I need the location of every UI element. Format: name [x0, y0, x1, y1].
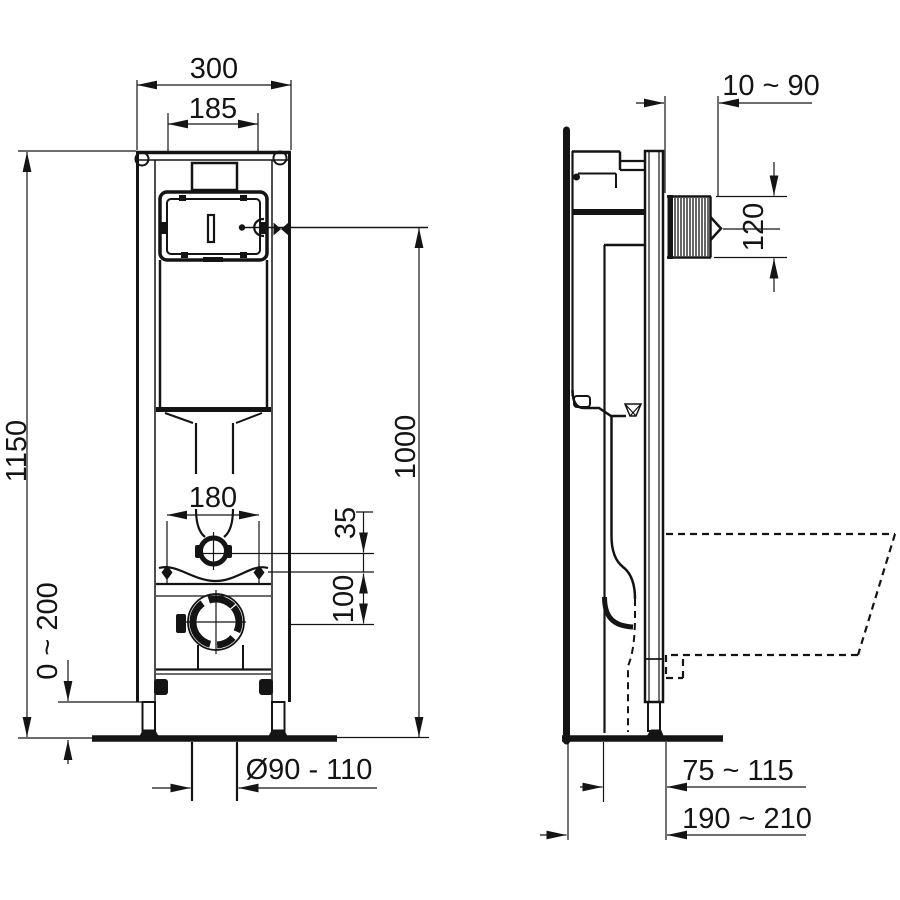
dim-cistern-width: 185 — [168, 93, 258, 151]
drain-bend — [605, 597, 634, 627]
leg-clip-right — [259, 679, 273, 695]
front-view: 300 185 1150 0 ~ 200 180 — [1, 53, 429, 801]
flush-button-slot — [208, 215, 214, 242]
shaft-pointer — [711, 217, 722, 240]
floor-drain-pipe — [192, 742, 237, 801]
frame-rail-side — [645, 151, 664, 737]
dim-actuator-opening: 120 — [714, 162, 787, 292]
leg-clip-left — [154, 679, 168, 695]
dim-leg-adjustment-label: 0 ~ 200 — [32, 582, 64, 680]
dim-offsets: 35 100 — [199, 507, 374, 625]
cistern — [156, 163, 289, 423]
wc-frame-drawing: 300 185 1150 0 ~ 200 180 — [0, 0, 900, 900]
supply-connection-point — [239, 224, 245, 230]
dim-outlet-depth: 75 ~ 115 — [580, 755, 806, 787]
dim-flush-offset-label: 35 — [330, 507, 362, 539]
actuator-shaft — [667, 195, 721, 259]
dim-fixing-spacing-label: 180 — [189, 482, 237, 514]
dim-overall-height-label: 1150 — [1, 420, 33, 482]
dim-actuator-height-label: 1000 — [390, 415, 422, 480]
dim-drain-depth: 190 ~ 210 — [540, 803, 812, 835]
valve-symbol — [274, 223, 282, 236]
dim-outlet-diameter: Ø90 - 110 — [152, 754, 377, 788]
dim-cistern-width-label: 185 — [189, 93, 237, 125]
dim-overall-width-label: 300 — [190, 53, 238, 85]
adjustable-legs — [139, 679, 288, 737]
wc-pan-outline — [666, 534, 895, 678]
dim-outlet-offset-label: 100 — [328, 575, 360, 623]
cistern-side — [572, 151, 646, 733]
drain-elbow — [176, 590, 248, 670]
dim-wall-adjustment-label: 10 ~ 90 — [722, 70, 820, 102]
dim-outlet-diameter-label: Ø90 - 110 — [246, 754, 373, 786]
dim-drain-depth-label: 190 ~ 210 — [682, 803, 812, 835]
dim-overall-height: 1150 — [1, 151, 136, 738]
side-view: 10 ~ 90 120 75 ~ 115 190 ~ 210 — [540, 70, 895, 840]
below-floor-references — [568, 742, 666, 840]
technical-drawing-page: 300 185 1150 0 ~ 200 180 — [0, 0, 900, 900]
dim-outlet-depth-label: 75 ~ 115 — [682, 755, 794, 787]
dim-actuator-opening-label: 120 — [738, 203, 770, 251]
flush-pipe-side — [612, 416, 636, 599]
actuator-housing — [192, 163, 237, 190]
